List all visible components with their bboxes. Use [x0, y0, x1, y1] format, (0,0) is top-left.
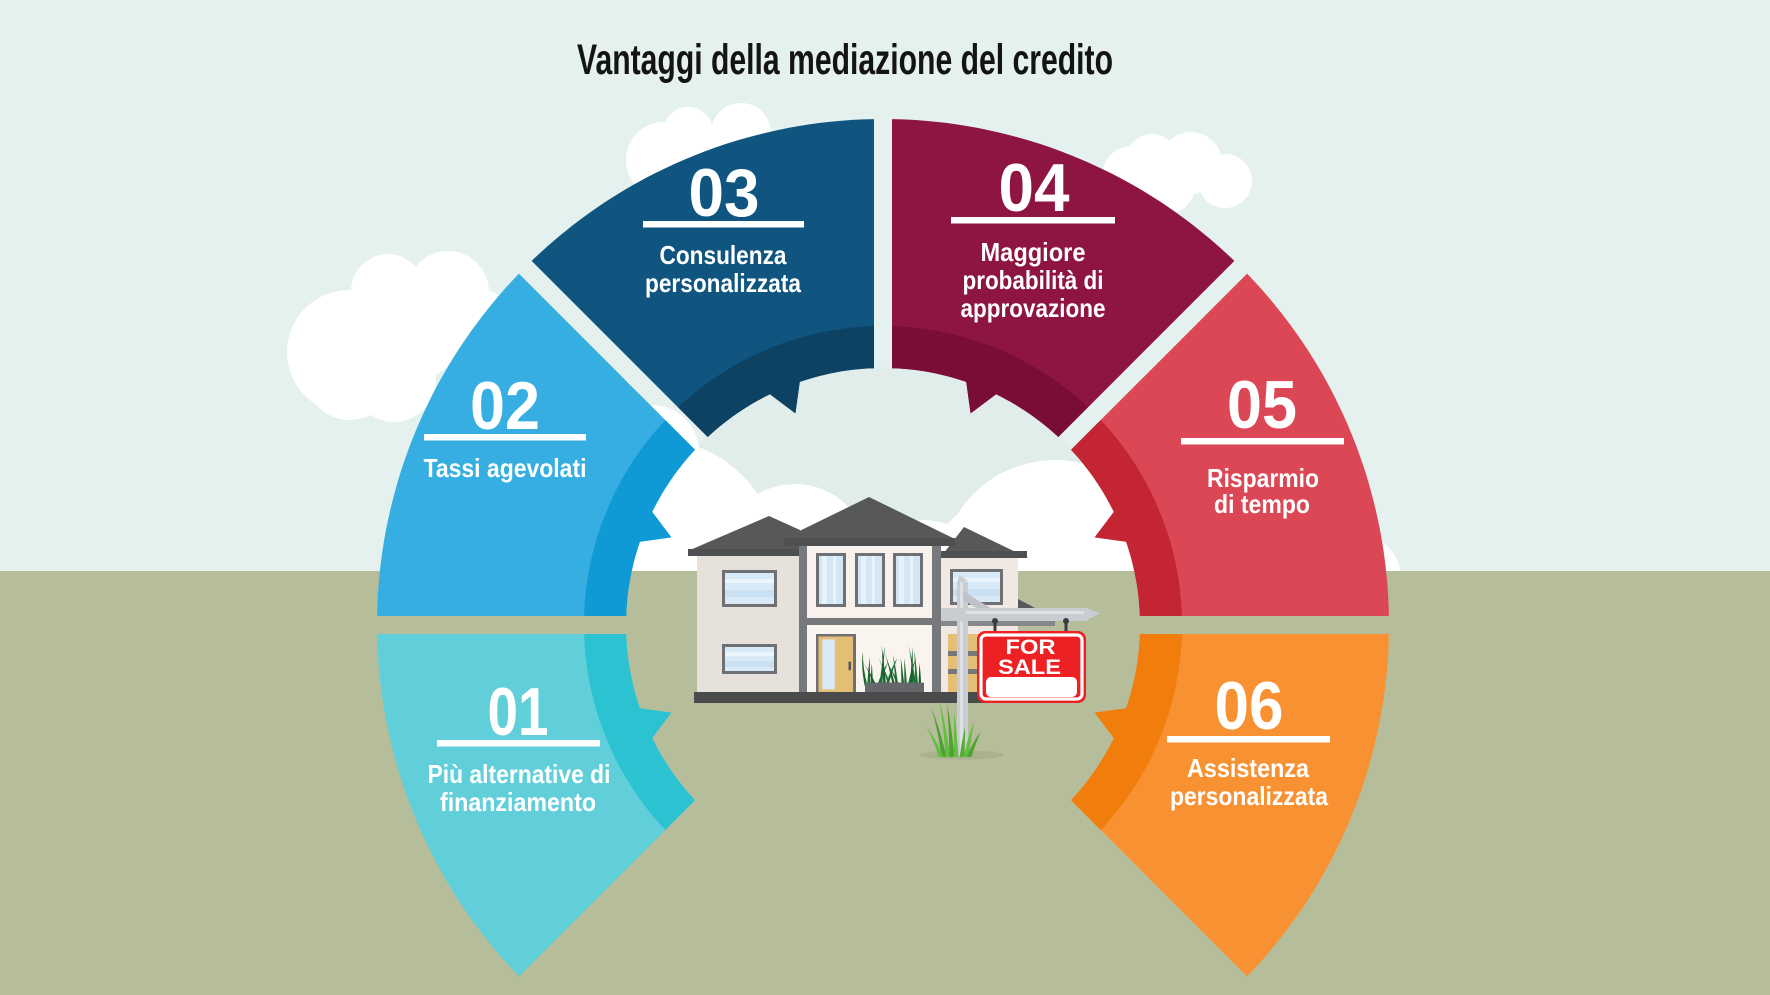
svg-text:Più alternative di: Più alternative di — [428, 759, 611, 789]
svg-text:personalizzata: personalizzata — [1170, 781, 1328, 811]
svg-text:probabilità di: probabilità di — [963, 265, 1104, 295]
svg-text:01: 01 — [488, 674, 549, 750]
svg-text:Consulenza: Consulenza — [660, 240, 787, 270]
svg-text:approvazione: approvazione — [961, 293, 1106, 323]
svg-text:Assistenza: Assistenza — [1187, 753, 1309, 783]
svg-text:Vantaggi della mediazione del: Vantaggi della mediazione del credito — [577, 36, 1113, 84]
svg-text:SALE: SALE — [998, 656, 1061, 679]
svg-text:Maggiore: Maggiore — [981, 237, 1086, 267]
svg-text:06: 06 — [1215, 668, 1284, 744]
svg-text:04: 04 — [999, 150, 1070, 226]
svg-text:03: 03 — [689, 155, 760, 231]
svg-text:Tassi agevolati: Tassi agevolati — [424, 453, 587, 483]
svg-text:05: 05 — [1227, 367, 1297, 443]
svg-text:02: 02 — [470, 368, 540, 444]
svg-text:di tempo: di tempo — [1214, 489, 1310, 519]
svg-text:personalizzata: personalizzata — [645, 268, 801, 298]
svg-text:finanziamento: finanziamento — [440, 787, 596, 817]
